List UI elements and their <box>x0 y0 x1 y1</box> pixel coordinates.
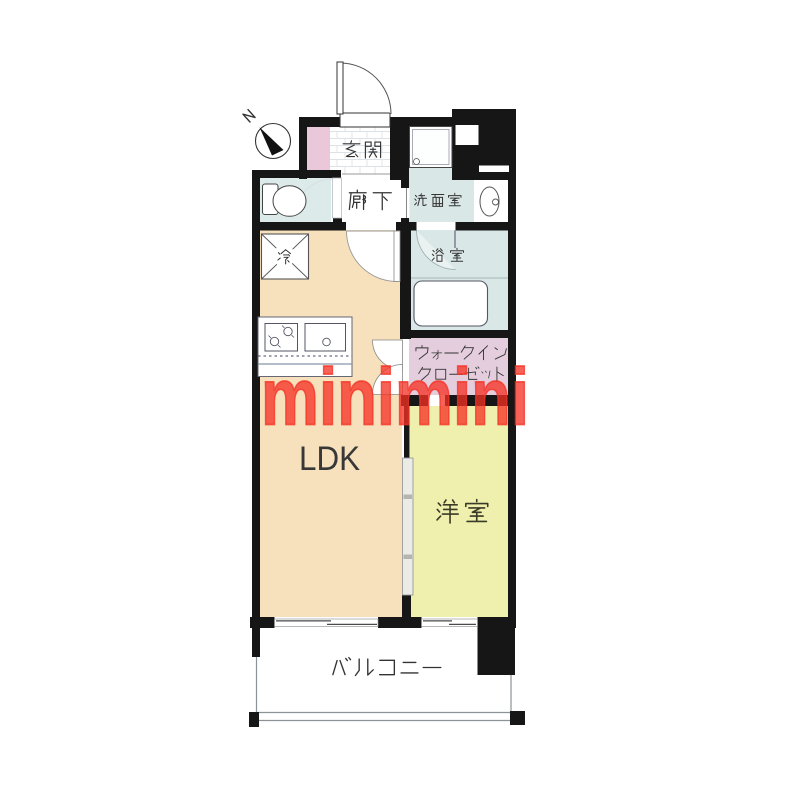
svg-text:LDK: LDK <box>299 440 360 478</box>
svg-text:minimini: minimini <box>261 353 529 443</box>
